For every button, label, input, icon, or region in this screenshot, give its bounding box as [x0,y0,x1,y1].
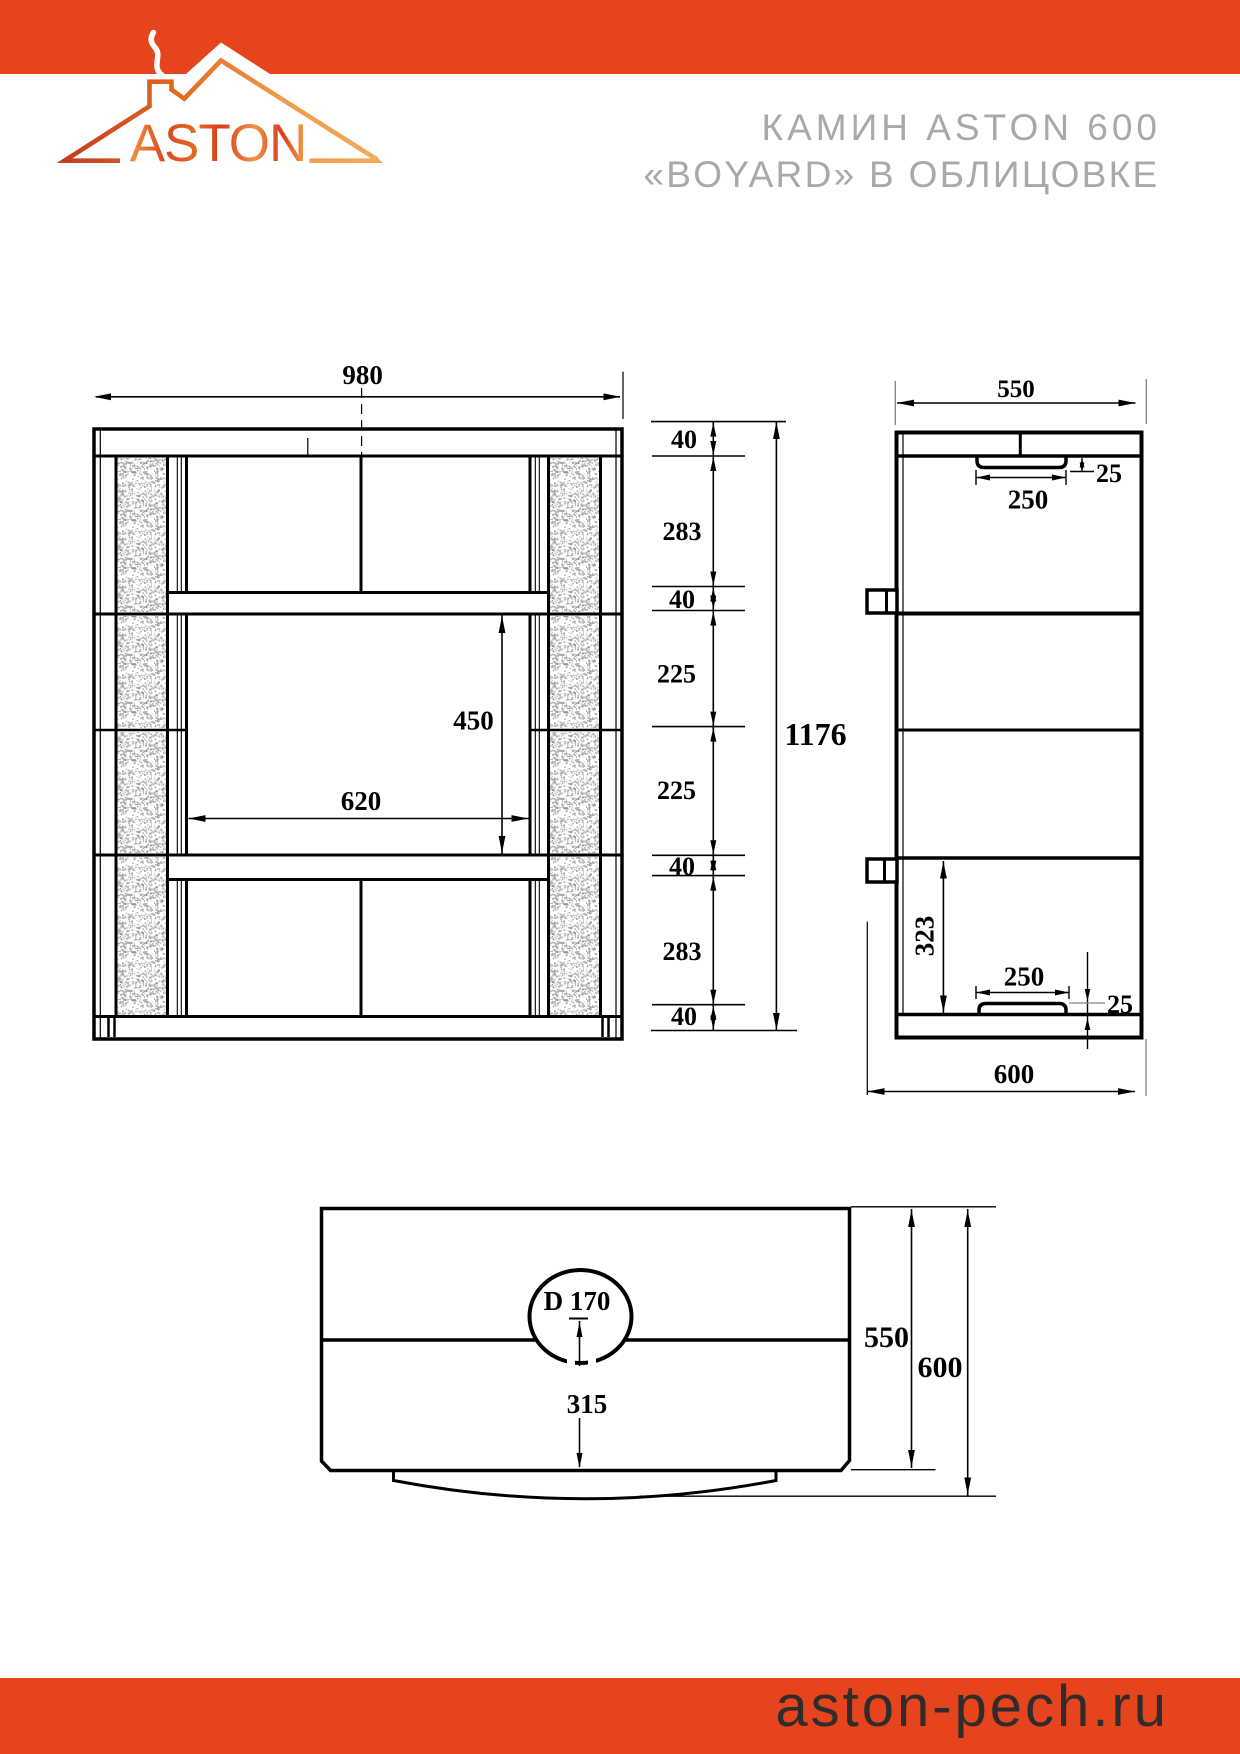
svg-text:450: 450 [453,706,494,736]
svg-text:КАМИН ASTON 600: КАМИН ASTON 600 [762,107,1161,148]
svg-text:250: 250 [1008,485,1049,515]
svg-text:225: 225 [657,776,696,805]
svg-text:40: 40 [669,852,695,881]
svg-text:40: 40 [669,585,695,614]
svg-text:620: 620 [341,786,382,816]
svg-text:aston-pech.ru: aston-pech.ru [775,1674,1169,1739]
svg-text:1176: 1176 [784,716,846,752]
svg-text:D 170: D 170 [544,1286,611,1316]
svg-text:600: 600 [918,1351,963,1384]
svg-text:«BOYARD» В ОБЛИЦОВКЕ: «BOYARD» В ОБЛИЦОВКЕ [643,154,1159,195]
svg-text:250: 250 [1004,962,1045,992]
svg-text:283: 283 [663,937,702,966]
svg-text:980: 980 [342,360,383,390]
svg-text:225: 225 [657,660,696,689]
svg-text:600: 600 [994,1059,1035,1089]
svg-text:40: 40 [671,1002,697,1031]
svg-text:ASTON: ASTON [130,114,307,173]
svg-text:283: 283 [663,517,702,546]
svg-text:25: 25 [1107,990,1133,1019]
svg-text:550: 550 [997,376,1035,403]
svg-text:25: 25 [1096,459,1122,488]
svg-text:550: 550 [864,1321,909,1354]
svg-text:315: 315 [567,1389,608,1419]
svg-text:323: 323 [910,916,940,957]
svg-text:40: 40 [671,425,697,454]
